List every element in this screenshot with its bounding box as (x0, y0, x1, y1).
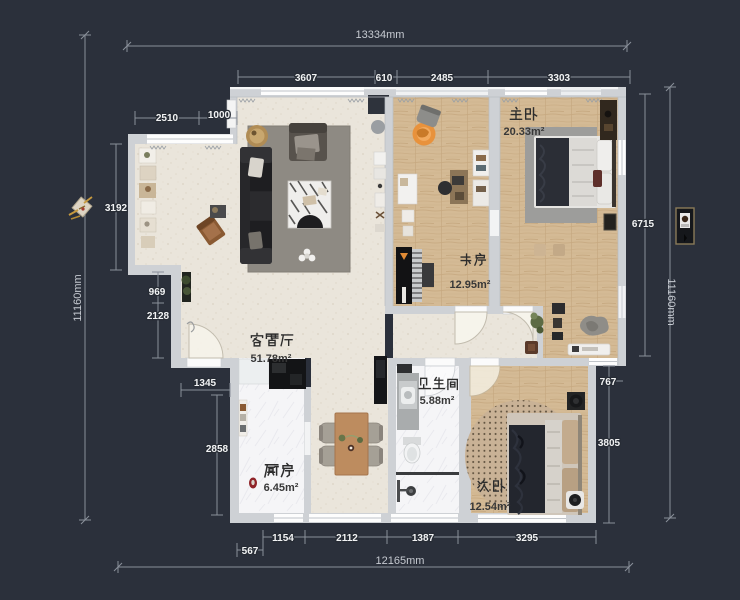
svg-text:567: 567 (242, 546, 259, 557)
svg-text:2510: 2510 (156, 113, 179, 124)
svg-text:5.88m²: 5.88m² (420, 395, 455, 407)
svg-text:11160mm: 11160mm (72, 274, 84, 321)
svg-text:2485: 2485 (431, 73, 454, 84)
svg-text:1345: 1345 (194, 378, 217, 389)
svg-text:610: 610 (376, 73, 393, 84)
svg-text:12.54m²: 12.54m² (470, 501, 511, 513)
svg-text:11160mm: 11160mm (665, 278, 677, 325)
svg-text:13334mm: 13334mm (356, 29, 405, 41)
svg-text:3805: 3805 (598, 438, 621, 449)
svg-text:1387: 1387 (412, 533, 435, 544)
svg-text:6715: 6715 (632, 219, 655, 230)
svg-text:3303: 3303 (548, 73, 571, 84)
svg-text:1154: 1154 (272, 533, 294, 544)
svg-text:51.78m²: 51.78m² (251, 353, 292, 365)
svg-text:2112: 2112 (336, 533, 358, 544)
svg-text:969: 969 (149, 287, 166, 298)
svg-text:1000: 1000 (208, 110, 231, 121)
svg-text:2858: 2858 (206, 444, 229, 455)
svg-text:2128: 2128 (147, 311, 170, 322)
svg-text:3607: 3607 (295, 73, 318, 84)
svg-text:12.95m²: 12.95m² (450, 279, 491, 291)
svg-text:767: 767 (600, 377, 617, 388)
svg-text:6.45m²: 6.45m² (264, 482, 299, 494)
svg-text:20.33m²: 20.33m² (504, 126, 545, 138)
svg-text:3192: 3192 (105, 203, 128, 214)
svg-text:12165mm: 12165mm (376, 555, 425, 567)
svg-text:3295: 3295 (516, 533, 539, 544)
